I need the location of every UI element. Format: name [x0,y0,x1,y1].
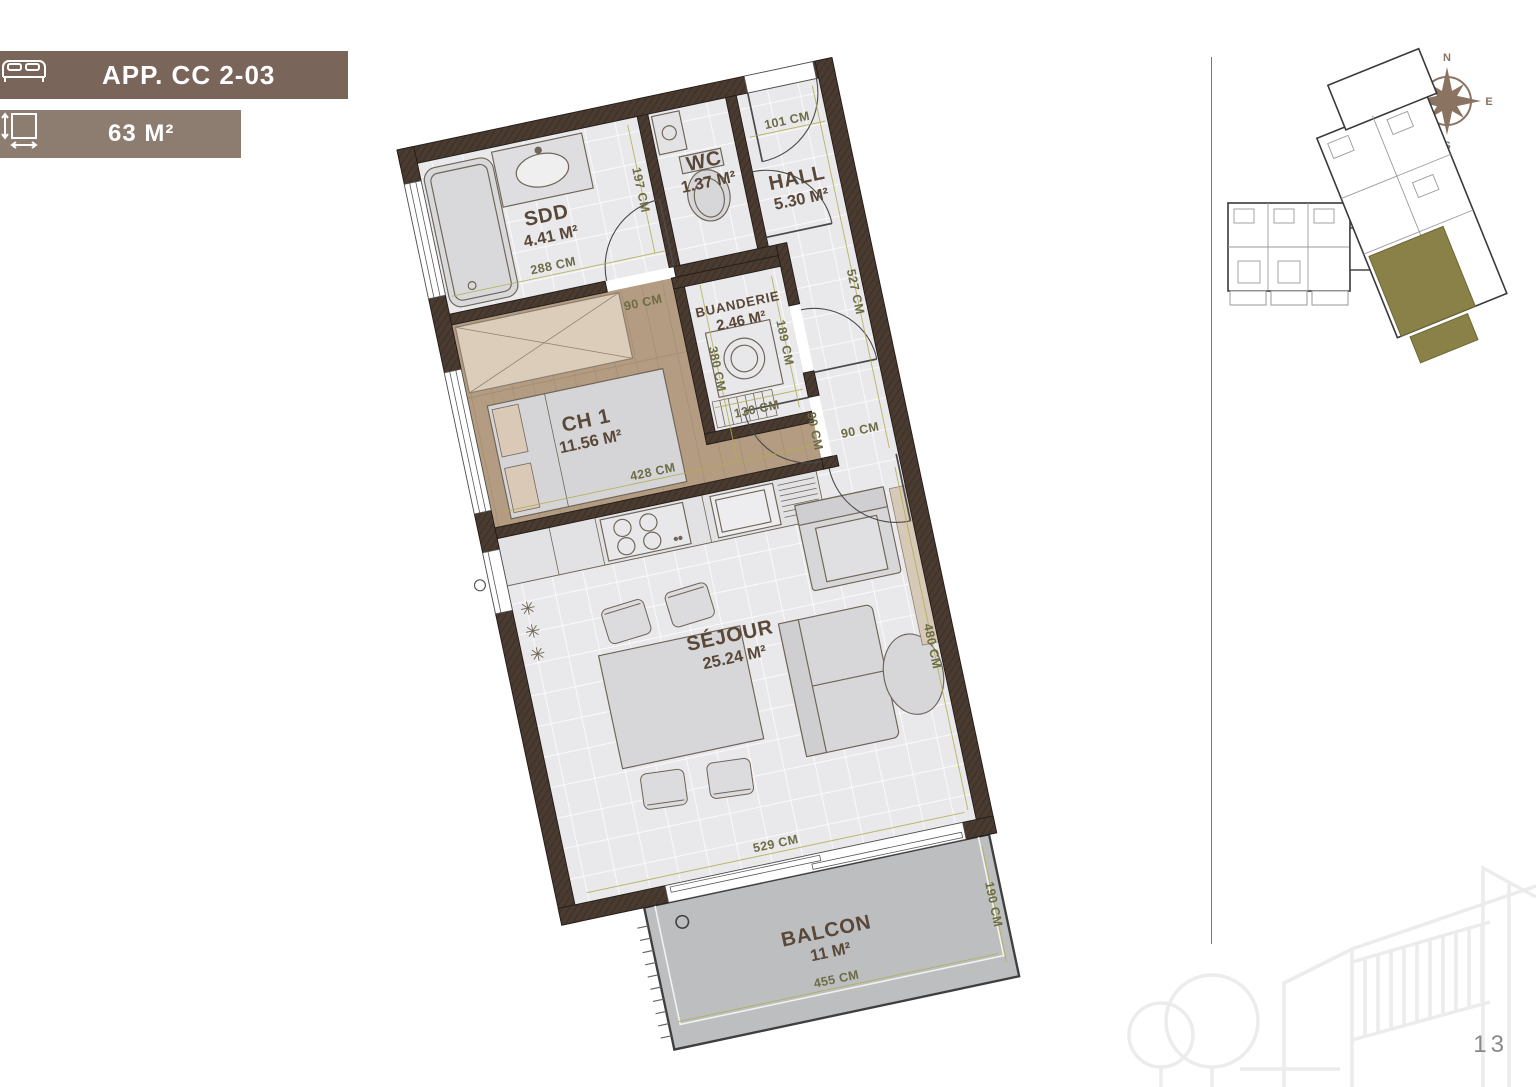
apartment-plan: ✳✳✳ [383,58,1027,1071]
compass-north: N [1443,52,1451,64]
floor-plan-svg: ✳✳✳ [0,0,1536,1087]
key-plan [1228,49,1528,368]
page-number: 13 [1473,1031,1508,1059]
compass-east: E [1485,96,1492,108]
